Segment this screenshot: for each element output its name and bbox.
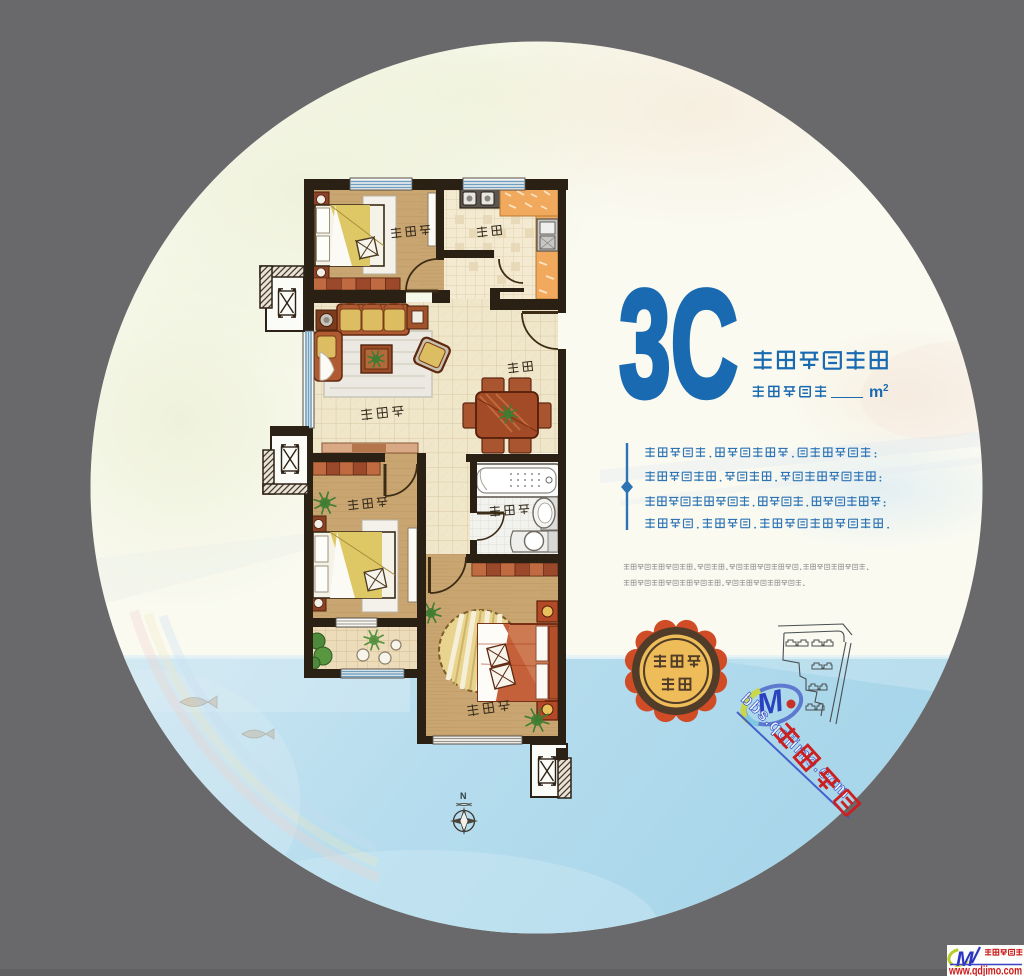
svg-text:2: 2: [883, 383, 889, 394]
svg-text:3C: 3C: [619, 258, 738, 428]
svg-text:m: m: [869, 384, 883, 401]
svg-text:N: N: [460, 791, 467, 801]
svg-text:www.qdjimo.com: www.qdjimo.com: [948, 964, 1022, 976]
